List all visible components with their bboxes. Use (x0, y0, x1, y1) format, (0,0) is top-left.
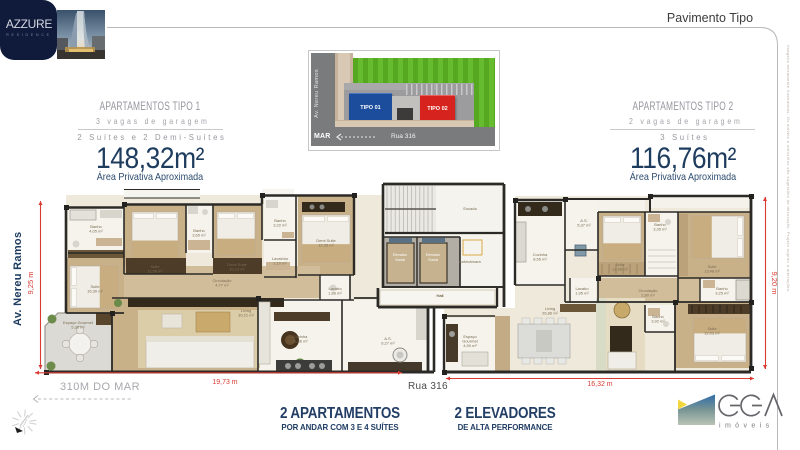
svg-text:16,30 m²: 16,30 m² (87, 289, 103, 294)
svg-text:3,35 m²: 3,35 m² (653, 227, 667, 232)
svg-text:Elevador: Elevador (393, 253, 408, 257)
svg-text:5,38 m²: 5,38 m² (71, 325, 85, 330)
svg-text:3,25 m²: 3,25 m² (715, 291, 729, 296)
svg-text:Hall: Hall (437, 293, 444, 298)
svg-text:10,13 m²: 10,13 m² (229, 267, 245, 272)
svg-text:6,27 m²: 6,27 m² (381, 341, 395, 346)
svg-text:30,21 m²: 30,21 m² (238, 313, 254, 318)
svg-text:Escada: Escada (463, 206, 477, 211)
svg-text:Elevador: Elevador (426, 253, 441, 257)
svg-text:4,90 m²: 4,90 m² (463, 343, 477, 348)
svg-text:12,35 m²: 12,35 m² (318, 243, 334, 248)
svg-text:1,86 m²: 1,86 m² (328, 291, 342, 296)
svg-text:9,20 m: 9,20 m (770, 272, 779, 295)
svg-text:Social: Social (395, 258, 405, 262)
svg-text:Antecâmara: Antecâmara (459, 259, 481, 264)
svg-text:Social: Social (428, 258, 438, 262)
svg-text:11,36 m²: 11,36 m² (292, 339, 308, 344)
svg-text:11,56 m²: 11,56 m² (147, 269, 163, 274)
svg-text:13,48 m²: 13,48 m² (704, 269, 720, 274)
svg-text:26,86 m²: 26,86 m² (542, 311, 558, 316)
svg-text:3,92 m²: 3,92 m² (651, 319, 665, 324)
svg-text:19,73 m: 19,73 m (212, 379, 237, 386)
svg-text:16,32 m: 16,32 m (587, 381, 612, 388)
svg-text:4,05 m²: 4,05 m² (89, 229, 103, 234)
svg-text:9,25 m: 9,25 m (26, 272, 35, 295)
svg-text:4,77 m²: 4,77 m² (215, 283, 229, 288)
svg-text:12,03 m²: 12,03 m² (704, 331, 720, 336)
svg-text:imóveis: imóveis (719, 423, 774, 430)
svg-text:1,95 m²: 1,95 m² (575, 291, 589, 296)
svg-text:12,66 m²: 12,66 m² (612, 267, 628, 272)
svg-text:5,37 m²: 5,37 m² (577, 223, 591, 228)
svg-text:2,80 m²: 2,80 m² (641, 293, 655, 298)
svg-text:2,10 m²: 2,10 m² (273, 261, 287, 266)
svg-text:3,22 m²: 3,22 m² (273, 223, 287, 228)
svg-text:8,56 m²: 8,56 m² (533, 257, 547, 262)
svg-text:3,65 m²: 3,65 m² (192, 233, 206, 238)
